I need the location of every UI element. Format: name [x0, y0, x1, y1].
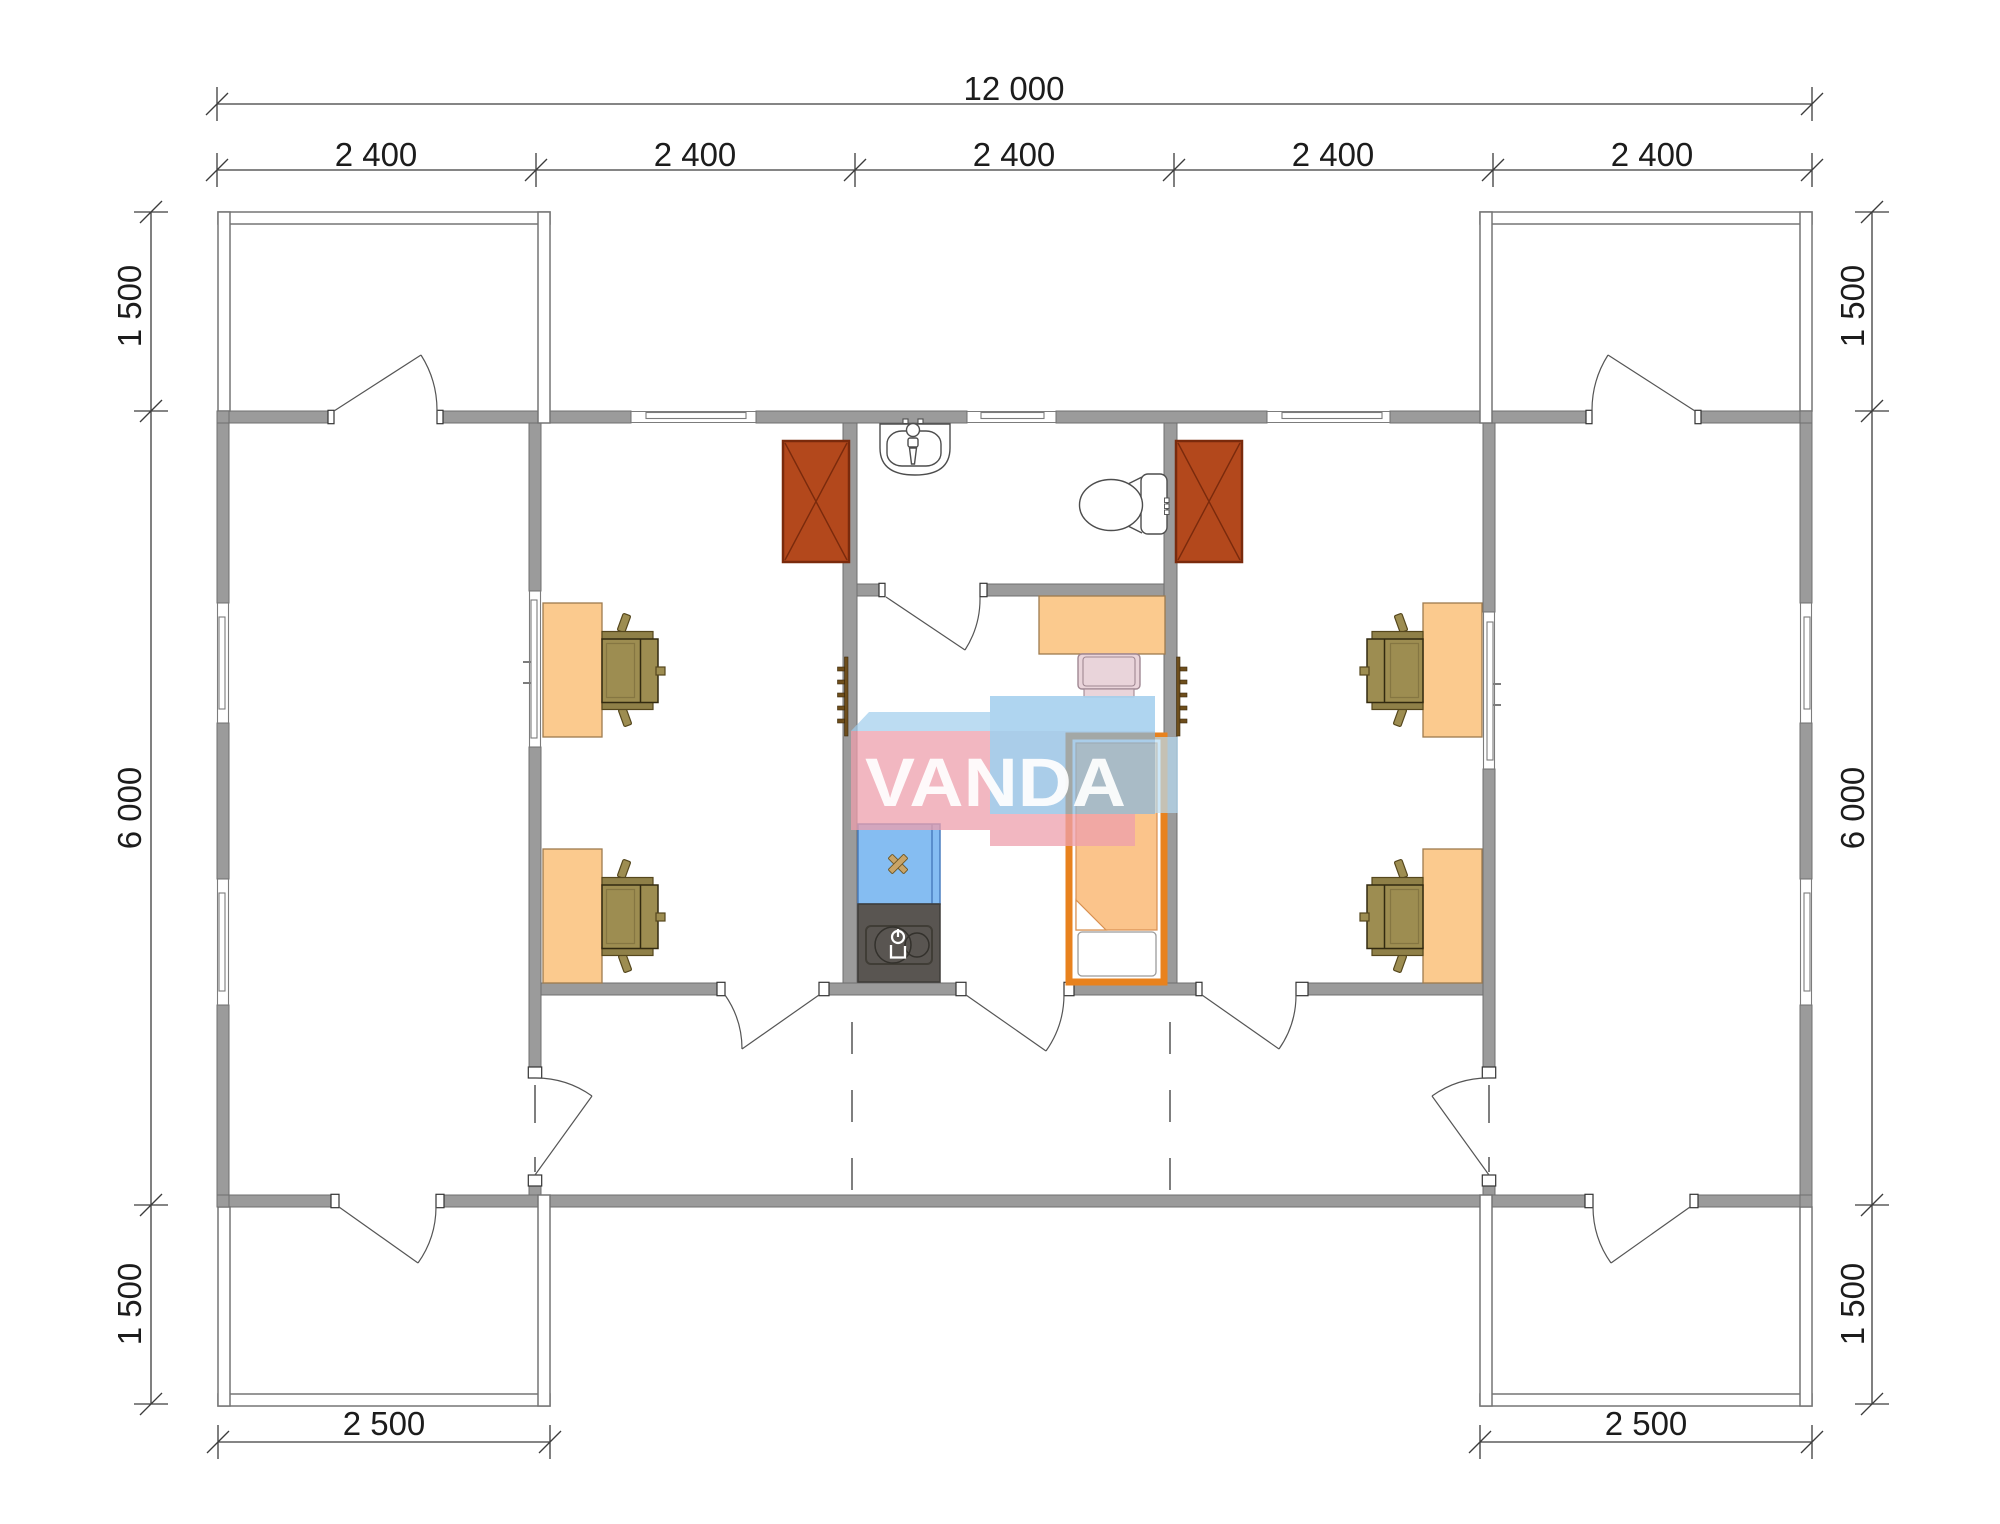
svg-text:12 000: 12 000 — [964, 70, 1065, 107]
svg-text:2 500: 2 500 — [1605, 1405, 1688, 1442]
svg-text:2 500: 2 500 — [343, 1405, 426, 1442]
svg-text:2 400: 2 400 — [1292, 136, 1375, 173]
svg-text:1 500: 1 500 — [111, 1263, 148, 1346]
svg-text:6 000: 6 000 — [1834, 767, 1871, 850]
svg-text:2 400: 2 400 — [335, 136, 418, 173]
svg-text:6 000: 6 000 — [111, 767, 148, 850]
svg-text:VANDA: VANDA — [865, 744, 1126, 821]
svg-text:2 400: 2 400 — [654, 136, 737, 173]
svg-text:1 500: 1 500 — [111, 265, 148, 348]
svg-text:1 500: 1 500 — [1834, 265, 1871, 348]
svg-text:2 400: 2 400 — [1611, 136, 1694, 173]
svg-text:2 400: 2 400 — [973, 136, 1056, 173]
svg-text:1 500: 1 500 — [1834, 1263, 1871, 1346]
